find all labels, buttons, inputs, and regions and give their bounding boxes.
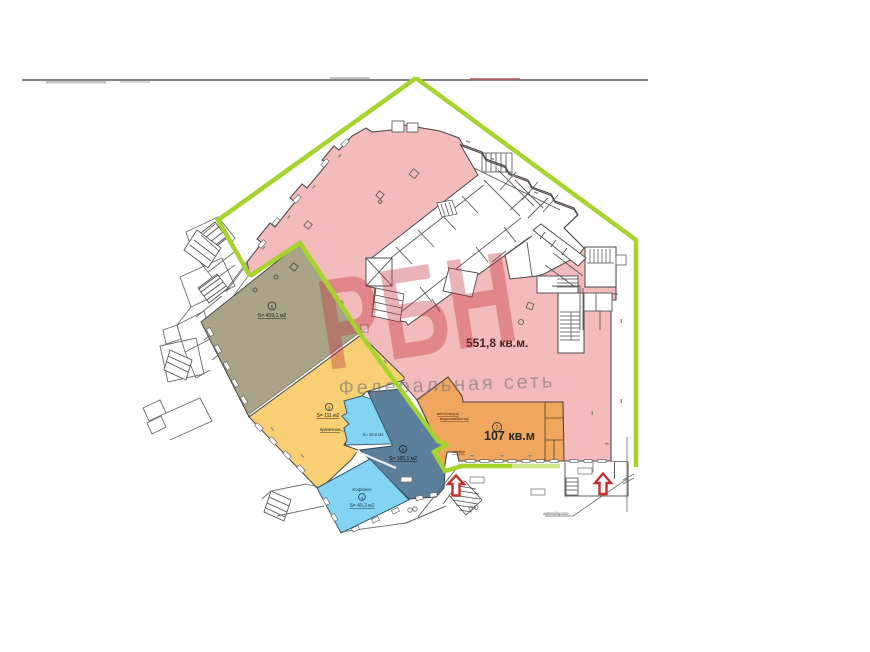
svg-text:прачечная: прачечная: [320, 427, 340, 432]
svg-text:S= 165,1 м2: S= 165,1 м2: [389, 456, 417, 462]
svg-text:водоснабжение: водоснабжение: [440, 416, 470, 421]
svg-text:автодорога: автодорога: [543, 511, 569, 516]
svg-text:S= 459,1 м2: S= 459,1 м2: [258, 313, 287, 319]
svg-text:S= 49,3 м2: S= 49,3 м2: [350, 503, 375, 509]
svg-text:S= 111 м2: S= 111 м2: [317, 413, 340, 419]
svg-text:тамбур: тамбур: [452, 449, 466, 454]
svg-text:107 кв.м: 107 кв.м: [484, 429, 535, 443]
svg-text:5: 5: [271, 305, 274, 311]
svg-text:Кофейня: Кофейня: [352, 486, 372, 492]
svg-text:S= 49,6 м2: S= 49,6 м2: [363, 432, 385, 437]
